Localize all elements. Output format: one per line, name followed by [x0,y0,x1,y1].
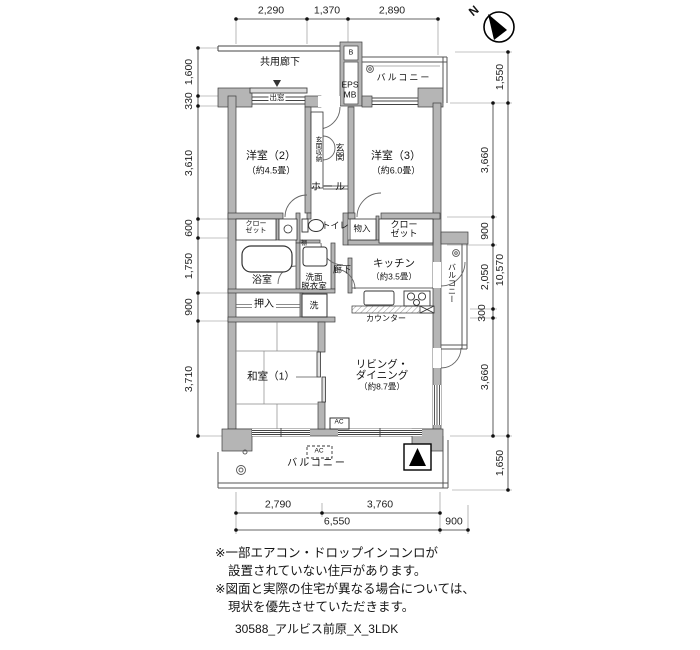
floor-plan-page: N 2,290 1,370 2,890 1,600 330 3,610 600 … [0,0,700,650]
dim-right-outer-3: 1,650 [494,450,506,476]
living-line2: ダイニング [356,369,409,381]
room-label-balcony-right: バルコニー [447,263,458,303]
room-label-bay-window: 出窓 [269,94,286,102]
dim-top-2: 1,370 [314,5,340,16]
kitchen-sink-icon [364,291,394,305]
room-label-balcony-bottom: バルコニー [287,459,347,470]
dim-left-6: 900 [183,298,195,316]
room-label-western2: 洋室（2） [246,151,296,163]
living-size: （約8.7畳） [359,382,405,392]
dim-right-outer-2: 10,570 [494,254,506,286]
dim-left-1: 1,600 [183,59,195,85]
room-label-balcony-top: バルコニー [377,73,432,82]
room-label-closet-right: クロー ゼット [390,221,417,240]
room-label-japanese1: 和室（1） [247,371,295,382]
room-label-entrance: 玄関 [334,143,347,161]
plan-footer-id: 30588_アルビス前原_X_3LDK [235,620,398,637]
room-label-storage: 物入 [353,225,370,234]
dim-right-inner-2: 900 [479,222,491,240]
dim-bottom-lower-2: 900 [445,516,463,527]
dim-top-1: 2,290 [258,5,284,16]
dim-left-2: 330 [183,92,195,110]
evacuation-hatch-icon [404,444,431,470]
room-label-western3-size: （約6.0畳） [372,166,421,175]
room-label-mb: MB [344,91,357,100]
dim-left-4: 600 [183,219,195,237]
note-line-2: 設置されていない住戸があります。 [228,560,426,579]
room-label-kitchen: キッチン [373,258,415,269]
room-label-eps: EPS [341,81,358,90]
note-line-3: ※図面と実際の住宅が異なる場合については、 [215,578,475,597]
sliding-doors [317,352,326,402]
washroom-line2: 脱衣室 [301,281,327,291]
room-label-kitchen-size: （約3.5畳） [371,273,417,282]
toilet-tank-icon [302,219,308,232]
room-label-counter: カウンター [364,315,408,323]
room-label-toilet: トイレ [321,221,348,230]
dim-right-inner-3: 2,050 [479,264,491,290]
entrance-marker-icon [273,80,281,87]
room-label-western2-size: （約4.5畳） [247,166,296,175]
room-label-corridor: 廊下 [333,265,351,274]
room-label-oshiire: 押入 [252,300,276,311]
dim-right-inner-5: 3,660 [479,364,491,390]
dim-bottom-upper-1: 2,790 [265,499,291,510]
note-line-4: 現状を優先させていただきます。 [228,596,414,615]
dim-left-3: 3,610 [183,150,195,176]
room-label-washroom: 洗面 脱衣室 [301,273,327,291]
room-label-shelf: 棚 [301,241,307,247]
dim-right-outer-1: 1,550 [494,64,506,90]
closet-left-line1: クロー [246,221,267,228]
note-line-1: ※一部エアコン・ドロップインコンロが [215,542,438,561]
closet-left-line2: ゼット [246,228,267,235]
dim-bottom-upper-2: 3,760 [367,499,393,510]
ac-label-balcony: AC [314,449,323,456]
counter-end-box [420,306,434,313]
dim-right-inner-4: 300 [476,304,488,322]
dim-left-5: 1,750 [183,253,195,279]
washbasin-icon [303,247,327,266]
room-label-living: リビング・ ダイニング （約8.7畳） [356,359,409,392]
dim-right-inner-1: 3,660 [479,147,491,173]
room-label-entrance-storage: 玄関収納 [312,136,322,162]
room-label-common-corridor: 共用廊下 [260,58,300,69]
bathtub-icon [242,246,292,272]
north-compass-icon [484,12,514,42]
ac-label-living: AC [334,420,343,427]
room-label-hall: ホール [311,183,347,194]
room-label-eps-b: B [349,49,354,56]
dim-bottom-lower-1: 6,550 [324,516,350,527]
room-label-western3: 洋室（3） [371,151,421,163]
stove-icon [404,291,430,306]
room-label-closet-left: クロー ゼット [246,221,267,236]
closet-right-line2: ゼット [390,229,417,239]
room-label-washer: 洗 [309,301,318,310]
dim-top-3: 2,890 [379,5,405,16]
dim-left-7: 3,710 [183,366,195,392]
room-label-bathroom: 浴室 [252,276,272,287]
